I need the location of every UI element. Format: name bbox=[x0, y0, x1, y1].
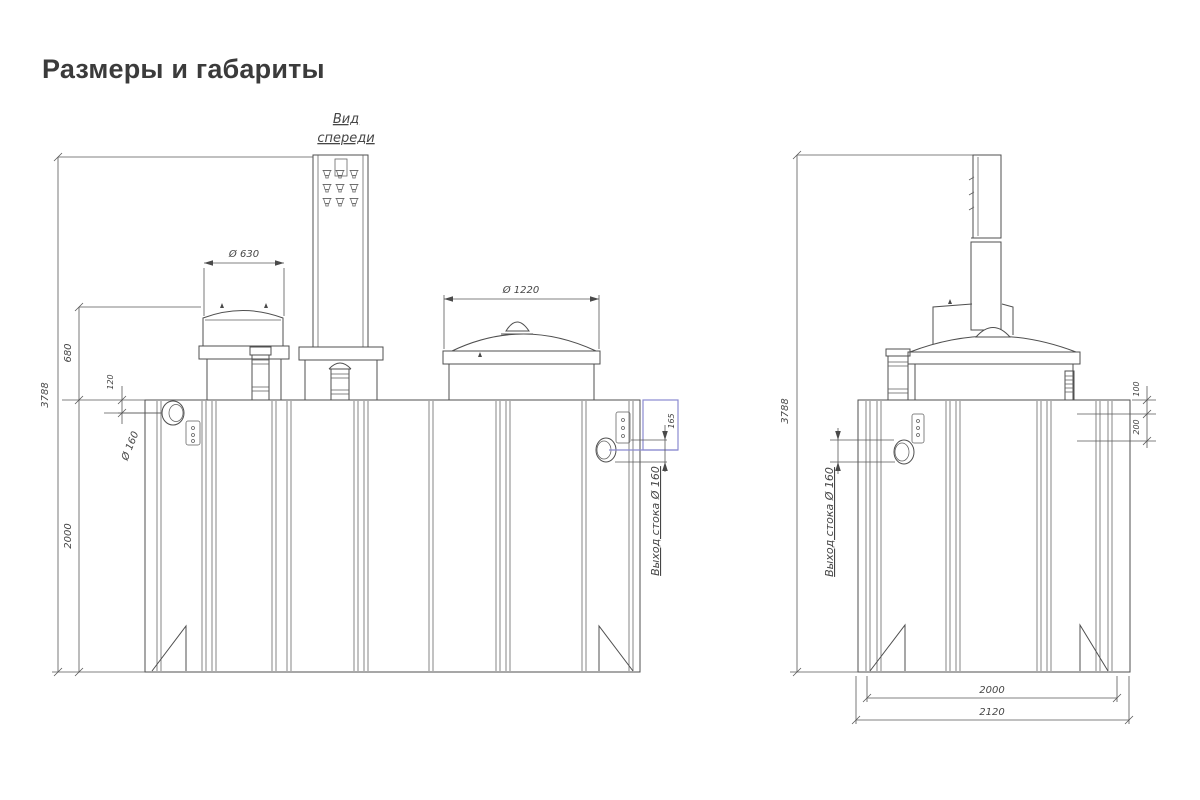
hatch-diameter-dimension: Ø 630 bbox=[204, 248, 284, 316]
dim-hatch-diameter: Ø 630 bbox=[228, 248, 259, 260]
outlet-offset-dimensions: 100 200 bbox=[1077, 381, 1156, 448]
inlet-plate bbox=[186, 421, 200, 445]
front-view: Вид спереди bbox=[40, 112, 678, 676]
dome-knob bbox=[501, 322, 533, 334]
dim-inlet-diameter: Ø 160 bbox=[119, 430, 142, 463]
dim-body-height: 2000 bbox=[63, 523, 74, 548]
dim-dome-diameter: Ø 1220 bbox=[502, 284, 540, 296]
outlet-plate-side bbox=[912, 414, 924, 443]
dim-outlet-top-offset: 100 bbox=[1132, 381, 1141, 396]
dim-overall-height-side: 3788 bbox=[780, 398, 791, 423]
outlet-plate-front bbox=[616, 412, 630, 443]
page: Размеры и габариты Вид спереди bbox=[0, 0, 1200, 800]
corner-brace bbox=[599, 626, 633, 671]
panel-window bbox=[335, 159, 347, 176]
dim-overall-width: 2120 bbox=[979, 707, 1004, 718]
dome-lid-front bbox=[443, 322, 600, 400]
outlet-label-side: Выход стока Ø 160 bbox=[823, 467, 836, 577]
side-view: Выход стока Ø 160 3788 100 200 bbox=[780, 151, 1156, 724]
inlet-pipe bbox=[104, 401, 200, 445]
dim-inlet-depth: 120 bbox=[106, 374, 115, 389]
dome-lid-side bbox=[908, 328, 1080, 401]
vent-pipe-front bbox=[329, 363, 351, 400]
dim-body-width: 2000 bbox=[979, 685, 1004, 696]
vent-pipe-side bbox=[886, 349, 910, 400]
view-label-line1: Вид bbox=[333, 112, 359, 127]
hatch-lid-front bbox=[199, 303, 289, 400]
tank-body-front bbox=[145, 400, 640, 672]
outlet-label-front: Выход стока Ø 160 bbox=[649, 466, 662, 576]
dome-knob-side bbox=[976, 328, 1010, 338]
dim-overall-height-front: 3788 bbox=[40, 382, 51, 407]
control-column-side bbox=[969, 155, 1001, 330]
dim-outlet-depth: 165 bbox=[667, 413, 676, 428]
dim-neck-height: 680 bbox=[63, 343, 74, 362]
outlet-front: 165 Выход стока Ø 160 bbox=[596, 400, 678, 576]
outlet-side: Выход стока Ø 160 bbox=[823, 414, 924, 577]
riser-pipe bbox=[250, 347, 271, 400]
view-label-line2: спереди bbox=[317, 131, 374, 146]
dome-diameter-dimension: Ø 1220 bbox=[444, 284, 599, 349]
corner-brace bbox=[1080, 625, 1108, 671]
technical-drawing: Вид спереди bbox=[0, 0, 1200, 800]
corner-brace bbox=[870, 625, 905, 671]
control-panel-grid bbox=[323, 170, 359, 206]
width-dimensions: 2000 2120 bbox=[852, 676, 1133, 724]
height-dimension-side: 3788 bbox=[780, 151, 973, 676]
dim-outlet-span: 200 bbox=[1132, 419, 1141, 434]
